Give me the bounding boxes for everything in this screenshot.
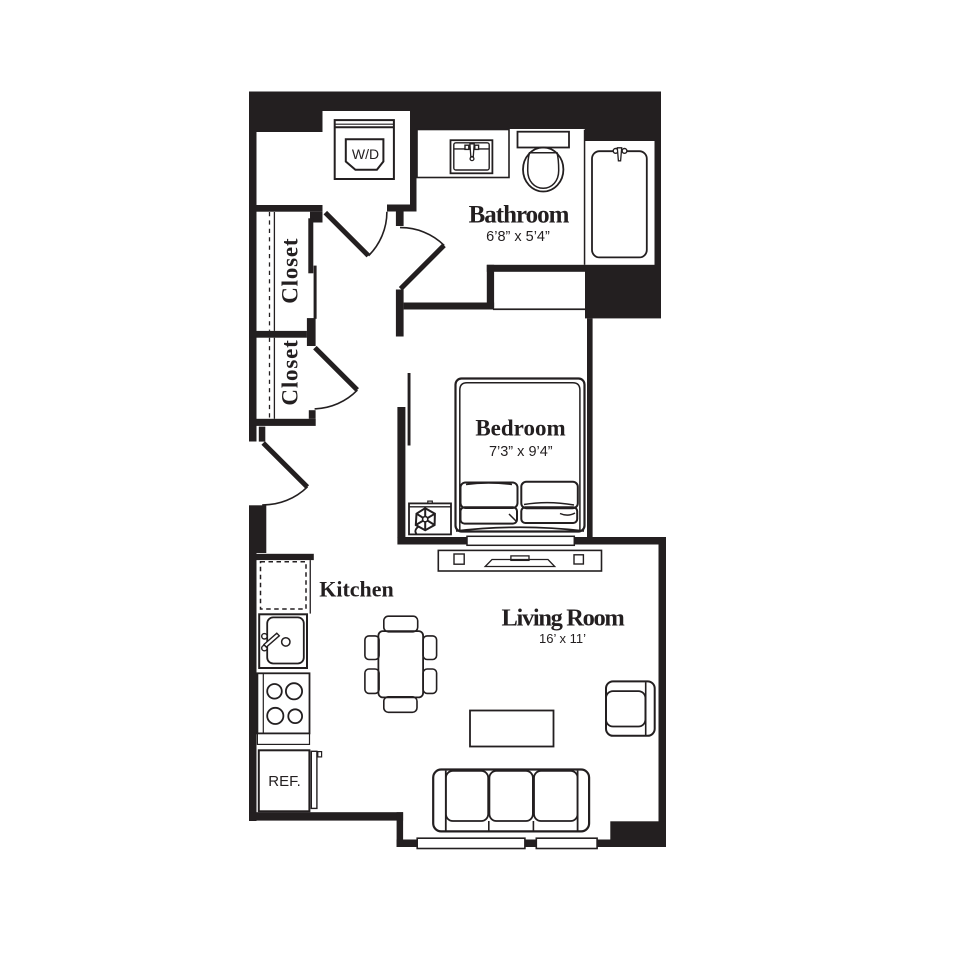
svg-text:Bedroom: Bedroom (475, 415, 565, 440)
svg-text:Bathroom: Bathroom (469, 201, 570, 228)
svg-text:Living Room: Living Room (502, 604, 625, 631)
svg-text:6’8” x 5’4”: 6’8” x 5’4” (486, 229, 550, 245)
svg-text:Kitchen: Kitchen (319, 576, 394, 601)
svg-text:7’3” x 9’4”: 7’3” x 9’4” (489, 444, 553, 460)
svg-text:W/D: W/D (352, 146, 379, 162)
svg-text:Closet: Closet (278, 238, 303, 304)
svg-text:REF.: REF. (268, 773, 301, 790)
svg-text:Closet: Closet (278, 339, 303, 405)
svg-text:16’ x 11’: 16’ x 11’ (539, 631, 586, 646)
